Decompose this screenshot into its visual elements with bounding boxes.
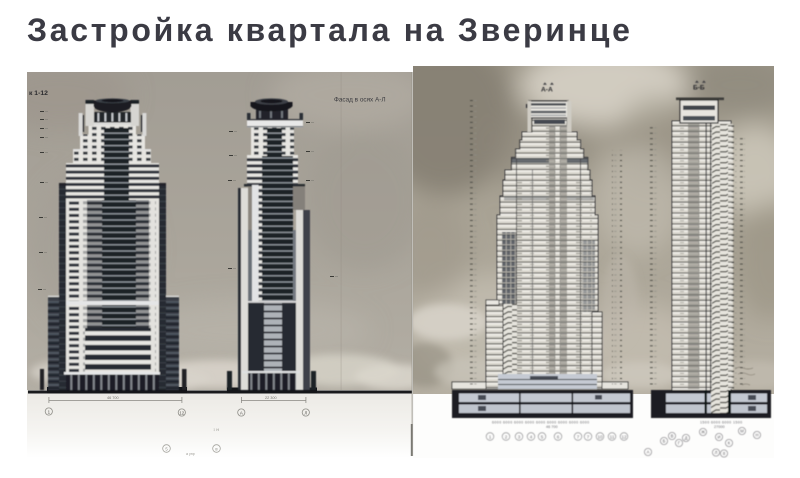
svg-text:Ж: Ж xyxy=(701,430,705,435)
svg-text:↕ н: ↕ н xyxy=(213,427,219,432)
svg-text:к 1-12: к 1-12 xyxy=(29,90,48,97)
svg-text:М: М xyxy=(740,429,744,434)
svg-text:10: 10 xyxy=(597,434,603,439)
svg-text:27000: 27000 xyxy=(714,425,725,429)
svg-text:46 700: 46 700 xyxy=(107,396,119,400)
svg-text:а упр: а упр xyxy=(186,452,195,456)
svg-text:12: 12 xyxy=(179,410,184,415)
svg-text:6000 6000 6000 6000 6000: 6000 6000 6000 6000 6000 6000 6000 6000 … xyxy=(492,421,590,425)
svg-text:А-А: А-А xyxy=(541,87,553,94)
svg-text:7: 7 xyxy=(577,434,580,439)
svg-text:А: А xyxy=(647,450,650,455)
svg-text:Л: Л xyxy=(304,410,307,415)
svg-text:2: 2 xyxy=(505,434,508,439)
svg-text:4: 4 xyxy=(530,434,533,439)
svg-text:А: А xyxy=(240,410,243,415)
svg-text:3: 3 xyxy=(518,434,521,439)
svg-text:7: 7 xyxy=(587,434,590,439)
svg-text:И: И xyxy=(717,435,720,440)
svg-text:Л: Л xyxy=(715,450,718,455)
svg-text:22 300: 22 300 xyxy=(265,396,277,400)
svg-text:Д: Д xyxy=(685,436,688,441)
svg-text:В: В xyxy=(671,434,674,439)
svg-text:Фасад в осях А-Л: Фасад в осях А-Л xyxy=(334,97,386,104)
svg-text:46 700: 46 700 xyxy=(546,425,558,429)
svg-text:12: 12 xyxy=(621,434,627,439)
svg-text:5: 5 xyxy=(541,434,544,439)
svg-text:Б-Б: Б-Б xyxy=(693,85,705,92)
svg-text:Н: Н xyxy=(755,433,758,438)
svg-text:Б: Б xyxy=(663,439,666,444)
svg-text:11: 11 xyxy=(610,434,615,439)
svg-text:1: 1 xyxy=(489,434,492,439)
svg-text:6: 6 xyxy=(557,434,560,439)
